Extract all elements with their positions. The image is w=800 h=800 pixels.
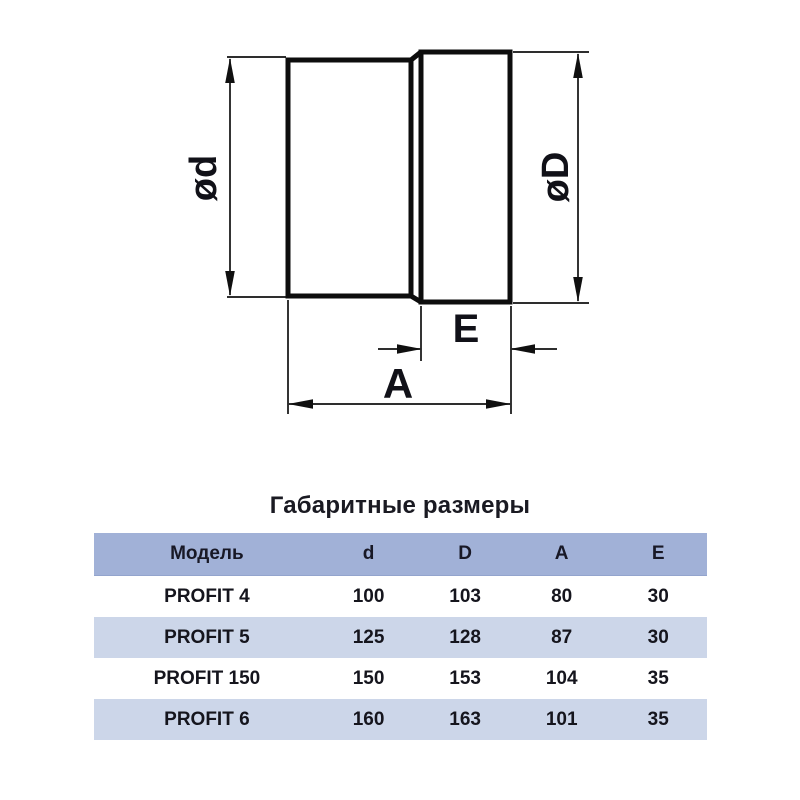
arrow-a-left-icon <box>288 399 313 409</box>
cell-D: 163 <box>417 709 514 731</box>
cell-D: 103 <box>417 586 514 608</box>
arrow-d-up-icon <box>225 58 235 83</box>
cell-E: 30 <box>610 627 707 649</box>
header-A: A <box>513 543 610 565</box>
header-E: E <box>610 543 707 565</box>
arrow-d-down-icon <box>225 271 235 296</box>
page: ød øD E A Габаритные размеры Модель d D … <box>0 0 800 800</box>
label-length-E: E <box>453 307 480 351</box>
cell-D: 153 <box>417 668 514 690</box>
cell-A: 87 <box>513 627 610 649</box>
header-d: d <box>320 543 417 565</box>
cell-model: PROFIT 5 <box>94 627 321 649</box>
cell-D: 128 <box>417 627 514 649</box>
header-D: D <box>417 543 514 565</box>
cell-d: 125 <box>320 627 417 649</box>
cell-E: 35 <box>610 709 707 731</box>
arrow-a-right-icon <box>486 399 511 409</box>
arrow-e-right-icon <box>397 344 422 354</box>
arrow-D-up-icon <box>573 53 583 78</box>
cell-E: 35 <box>610 668 707 690</box>
connector-dimension-diagram: ød øD E A <box>0 0 800 460</box>
table-row: PROFIT 4 100 103 80 30 <box>94 576 707 617</box>
cell-model: PROFIT 6 <box>94 709 321 731</box>
header-model: Модель <box>94 543 321 565</box>
table-row: PROFIT 6 160 163 101 35 <box>94 699 707 740</box>
label-length-A: A <box>383 360 413 407</box>
cell-model: PROFIT 150 <box>94 668 321 690</box>
cell-model: PROFIT 4 <box>94 586 321 608</box>
cell-A: 101 <box>513 709 610 731</box>
cell-d: 100 <box>320 586 417 608</box>
arrow-D-down-icon <box>573 277 583 302</box>
label-diameter-D: øD <box>535 152 577 203</box>
table-header-row: Модель d D A E <box>94 533 707 576</box>
table-row: PROFIT 5 125 128 87 30 <box>94 617 707 658</box>
table-row: PROFIT 150 150 153 104 35 <box>94 658 707 699</box>
label-diameter-d: ød <box>183 155 225 201</box>
arrow-e-left-icon <box>510 344 535 354</box>
cell-A: 104 <box>513 668 610 690</box>
connector-small-pipe <box>288 60 411 296</box>
cell-A: 80 <box>513 586 610 608</box>
cell-d: 150 <box>320 668 417 690</box>
dimensions-table: Модель d D A E PROFIT 4 100 103 80 30 PR… <box>94 533 707 740</box>
table-title: Габаритные размеры <box>90 493 710 519</box>
connector-sleeve <box>421 52 510 302</box>
connector-body <box>288 52 510 302</box>
cell-E: 30 <box>610 586 707 608</box>
cell-d: 160 <box>320 709 417 731</box>
